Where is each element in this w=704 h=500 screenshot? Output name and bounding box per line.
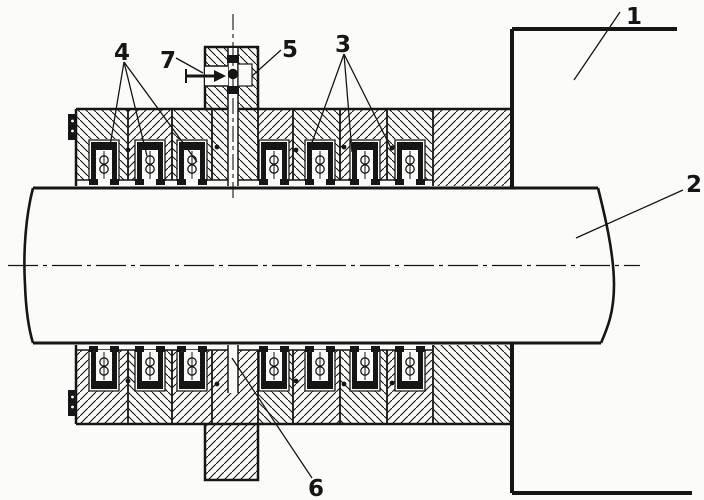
- hatch-dot: [215, 145, 220, 150]
- callout-2: 2: [576, 172, 702, 238]
- seal-lip: [177, 346, 186, 352]
- hatch-dot: [390, 381, 395, 386]
- seal-lip: [156, 346, 165, 352]
- seal-lip: [305, 346, 314, 352]
- seal-cap: [352, 381, 378, 389]
- lower-tab: [68, 390, 77, 416]
- seal-cap: [261, 142, 287, 150]
- leader-line: [574, 12, 620, 80]
- callout-number: 3: [335, 32, 351, 58]
- seal-leg: [397, 350, 402, 381]
- seal-cap: [307, 381, 333, 389]
- technical-drawing-page: 1234567: [0, 0, 704, 500]
- seal-cap: [397, 381, 423, 389]
- seal-lip: [305, 179, 314, 185]
- seal-leg: [328, 350, 333, 381]
- seal-lip: [89, 179, 98, 185]
- seal-cap: [91, 142, 117, 150]
- seal-lip: [395, 179, 404, 185]
- callout-number: 6: [308, 476, 324, 500]
- callout-number: 2: [686, 172, 702, 198]
- seal-leg: [307, 150, 312, 181]
- seal-leg: [91, 350, 96, 381]
- callout-number: 4: [114, 40, 130, 66]
- callout-number: 1: [626, 4, 642, 30]
- seal-lip: [177, 179, 186, 185]
- seal-lip: [89, 346, 98, 352]
- seal-housing-assemblies: [76, 109, 512, 424]
- seal-leg: [200, 150, 205, 181]
- seal-lip: [395, 346, 404, 352]
- bearing-housing-block: [512, 29, 692, 493]
- drain-channel: [228, 345, 238, 393]
- seal-leg: [179, 350, 184, 381]
- seal-lip: [110, 179, 119, 185]
- upper-tab-hole-2: [71, 130, 74, 133]
- seal-lip: [110, 346, 119, 352]
- seal-lip: [156, 179, 165, 185]
- seal-lip: [135, 179, 144, 185]
- callout-number: 7: [160, 48, 176, 74]
- hatch-dot: [126, 148, 131, 153]
- upper-housing-segment: [433, 109, 512, 186]
- seal-leg: [282, 350, 287, 381]
- seal-cap: [91, 381, 117, 389]
- seal-leg: [112, 350, 117, 381]
- seal-lip: [280, 346, 289, 352]
- seal-leg: [352, 350, 357, 381]
- hatch-dot: [342, 382, 347, 387]
- seal-lip: [371, 346, 380, 352]
- seal-leg: [158, 150, 163, 181]
- seal-leg: [397, 150, 402, 181]
- leader-line: [576, 190, 683, 238]
- seal-lip: [350, 179, 359, 185]
- hatch-dot: [342, 145, 347, 150]
- seal-lip: [416, 346, 425, 352]
- seal-leg: [352, 150, 357, 181]
- callout-number: 5: [282, 37, 298, 63]
- seal-leg: [158, 350, 163, 381]
- seal-lip: [326, 179, 335, 185]
- upper-tab: [68, 114, 77, 140]
- seal-leg: [200, 350, 205, 381]
- seal-leg: [137, 150, 142, 181]
- hatch-dot: [126, 379, 131, 384]
- lower-tab-hole-1: [71, 396, 74, 399]
- upper-tab-hole-1: [71, 120, 74, 123]
- callouts: 1234567: [110, 4, 702, 500]
- boss-body: [205, 424, 258, 480]
- seal-leg: [373, 150, 378, 181]
- hatch-dot: [294, 148, 299, 153]
- seal-cap: [137, 381, 163, 389]
- seal-lip: [259, 179, 268, 185]
- seal-leg: [418, 150, 423, 181]
- lower-tab-hole-2: [71, 406, 74, 409]
- seal-leg: [307, 350, 312, 381]
- seal-leg: [91, 150, 96, 181]
- seal-cap: [137, 142, 163, 150]
- seal-leg: [418, 350, 423, 381]
- seal-leg: [261, 350, 266, 381]
- seal-lip: [198, 179, 207, 185]
- hatch-dot: [215, 382, 220, 387]
- seal-lip: [350, 346, 359, 352]
- seal-cap: [352, 142, 378, 150]
- seal-leg: [373, 350, 378, 381]
- seal-lip: [135, 346, 144, 352]
- seal-lip: [259, 346, 268, 352]
- seal-cap: [397, 142, 423, 150]
- callout-1: 1: [574, 4, 642, 80]
- seal-assembly-cross-section: 1234567: [0, 0, 704, 500]
- seal-leg: [112, 150, 117, 181]
- callout-7: 7: [160, 48, 203, 74]
- seal-lip: [416, 179, 425, 185]
- seal-leg: [179, 150, 184, 181]
- seal-lip: [371, 179, 380, 185]
- side-pocket: [238, 64, 252, 86]
- leader-line: [176, 58, 203, 73]
- seal-lip: [326, 346, 335, 352]
- seal-lip: [198, 346, 207, 352]
- seal-lip: [280, 179, 289, 185]
- seal-leg: [328, 150, 333, 181]
- seal-cap: [179, 381, 205, 389]
- seal-leg: [137, 350, 142, 381]
- hatch-dot: [294, 379, 299, 384]
- seal-leg: [282, 150, 287, 181]
- lower-housing-segment: [433, 345, 512, 424]
- seal-leg: [261, 150, 266, 181]
- seal-cap: [261, 381, 287, 389]
